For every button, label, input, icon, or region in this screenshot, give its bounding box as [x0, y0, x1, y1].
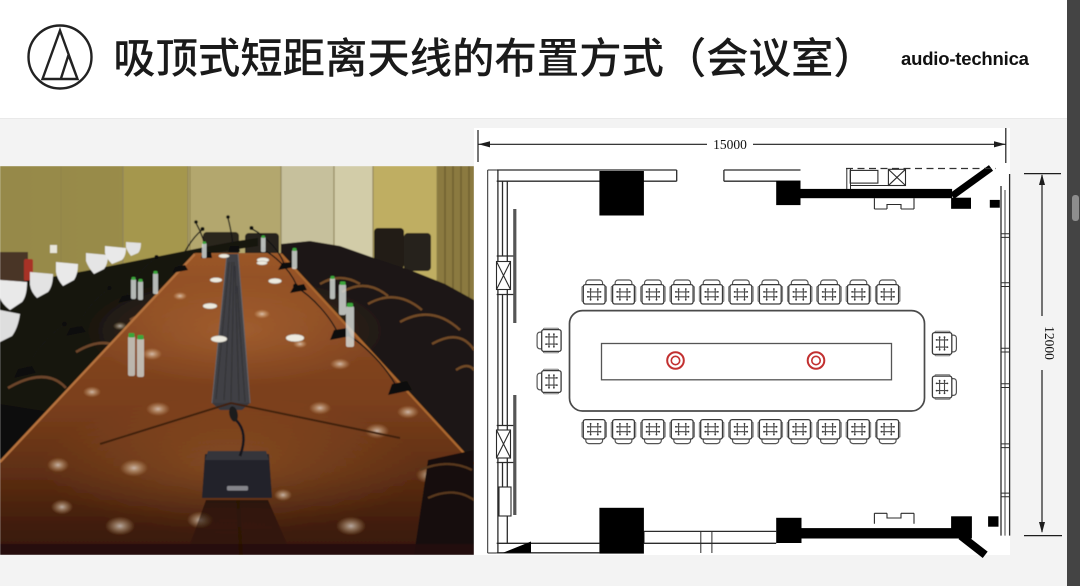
svg-text:15000: 15000 — [713, 137, 747, 152]
svg-text:12000: 12000 — [1042, 326, 1057, 360]
